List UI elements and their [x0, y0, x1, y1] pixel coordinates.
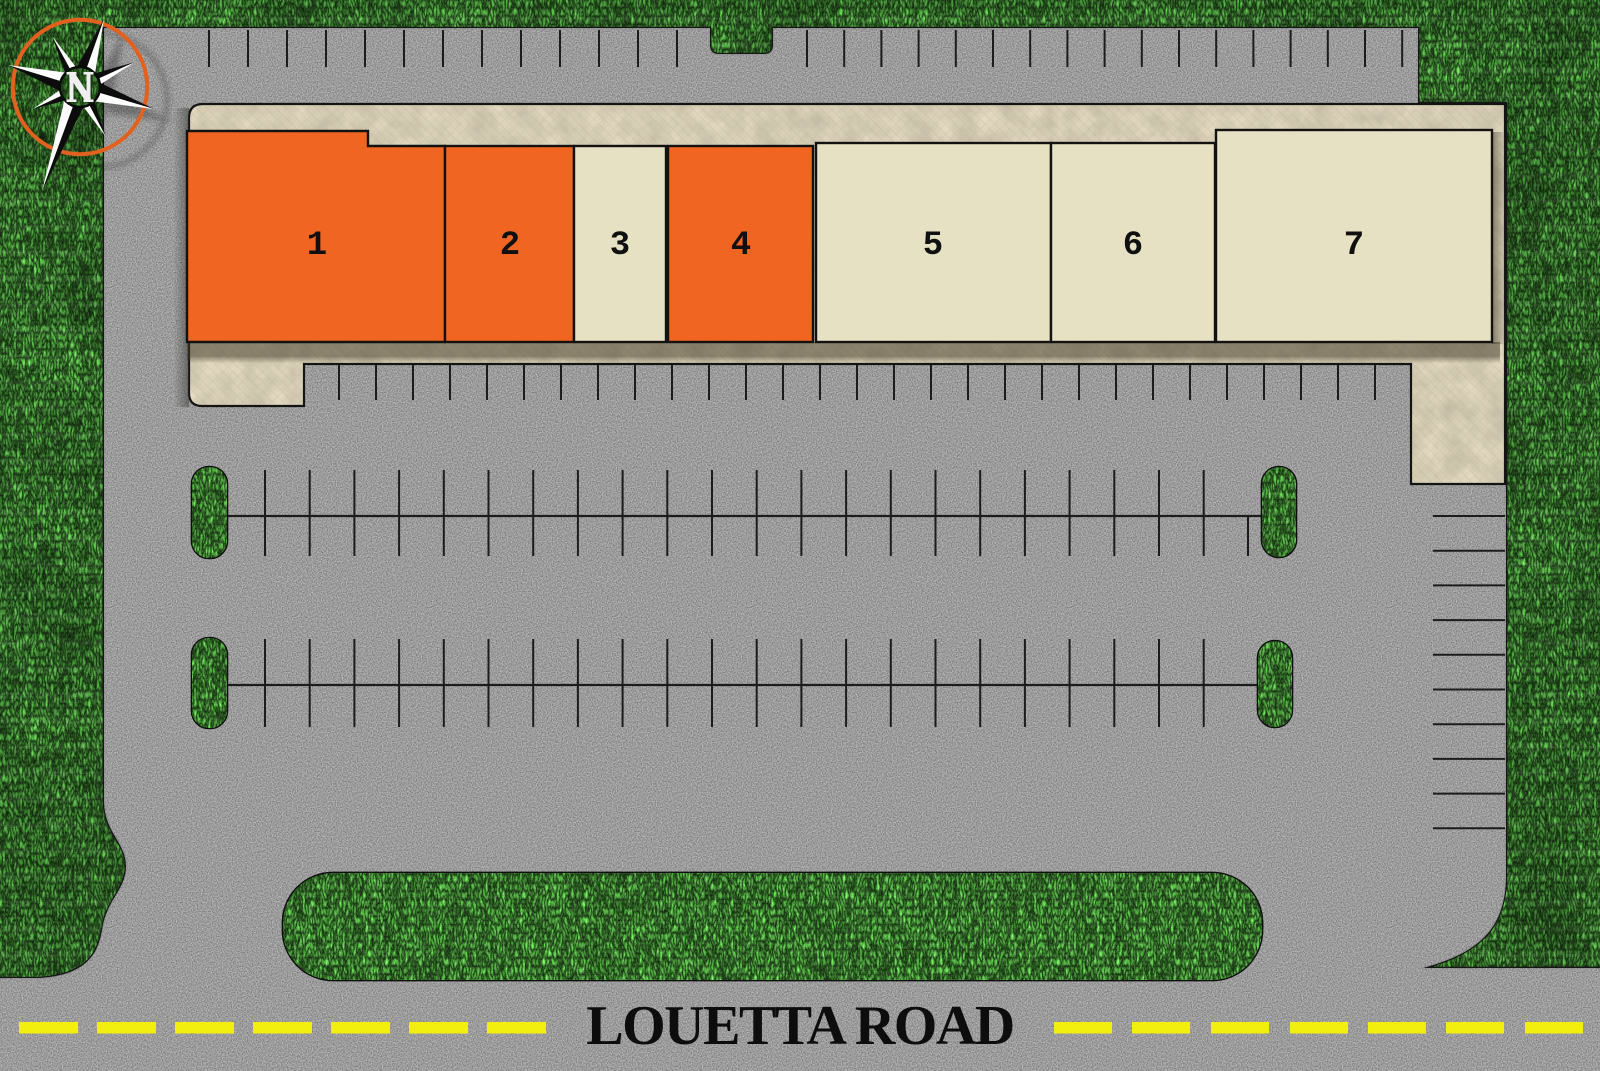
svg-text:7: 7 — [1344, 227, 1364, 265]
svg-text:3: 3 — [610, 227, 630, 265]
svg-text:4: 4 — [731, 227, 751, 265]
svg-text:5: 5 — [923, 227, 943, 265]
svg-text:LOUETTA ROAD: LOUETTA ROAD — [586, 995, 1013, 1057]
svg-text:2: 2 — [500, 227, 520, 265]
svg-text:6: 6 — [1123, 227, 1143, 265]
svg-text:1: 1 — [307, 227, 327, 265]
